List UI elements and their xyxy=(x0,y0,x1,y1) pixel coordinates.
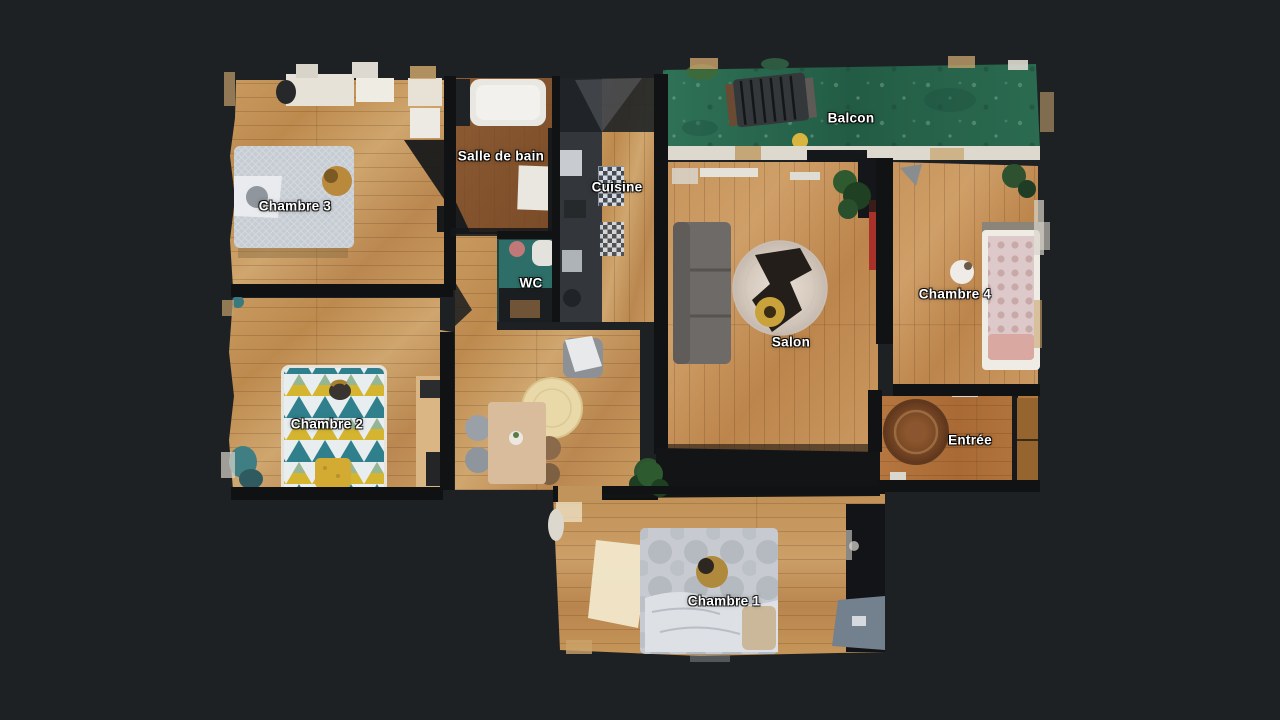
room-label-cuisine[interactable]: Cuisine xyxy=(592,180,643,195)
room-label-chambre-3[interactable]: Chambre 3 xyxy=(259,199,331,214)
room-label-chambre-1[interactable]: Chambre 1 xyxy=(688,594,760,609)
room-label-salon[interactable]: Salon xyxy=(772,335,810,350)
room-label-balcon[interactable]: Balcon xyxy=(828,111,875,126)
room-label-wc[interactable]: WC xyxy=(519,276,542,291)
room-label-chambre-4[interactable]: Chambre 4 xyxy=(919,287,991,302)
room-label-chambre-2[interactable]: Chambre 2 xyxy=(291,417,363,432)
room-labels-layer: Chambre 3 Salle de bain Cuisine WC Chamb… xyxy=(0,0,1280,720)
room-label-salle-de-bain[interactable]: Salle de bain xyxy=(458,149,544,164)
dollhouse-view: Chambre 3 Salle de bain Cuisine WC Chamb… xyxy=(0,0,1280,720)
room-label-entree[interactable]: Entrée xyxy=(948,433,992,448)
